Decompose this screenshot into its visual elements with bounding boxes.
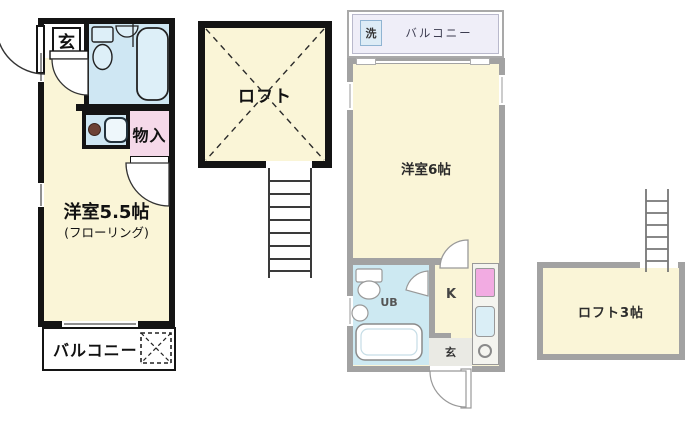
ladder-icon — [269, 168, 311, 278]
door-arc — [0, 25, 45, 74]
door-arc — [126, 163, 169, 206]
washbasin-icon — [352, 305, 368, 321]
door-arc — [440, 240, 468, 268]
toilet-tank-icon — [356, 269, 382, 282]
door-arc — [52, 59, 88, 95]
ladder-icon — [646, 189, 668, 272]
toilet-tank-icon — [92, 27, 113, 42]
toilet-icon — [93, 45, 112, 70]
door-leaf — [50, 51, 88, 59]
floorplan-canvas: 物入 玄 洋室5.5帖 (フローリング) バルコニー ロフト 洗 バルコニー 洋… — [0, 0, 695, 424]
toilet-icon — [358, 281, 380, 299]
sink-icon — [116, 26, 138, 37]
door-arc — [406, 271, 428, 296]
door-arc — [430, 371, 466, 407]
bathtub-icon — [137, 28, 168, 100]
linework-layer — [0, 0, 695, 424]
